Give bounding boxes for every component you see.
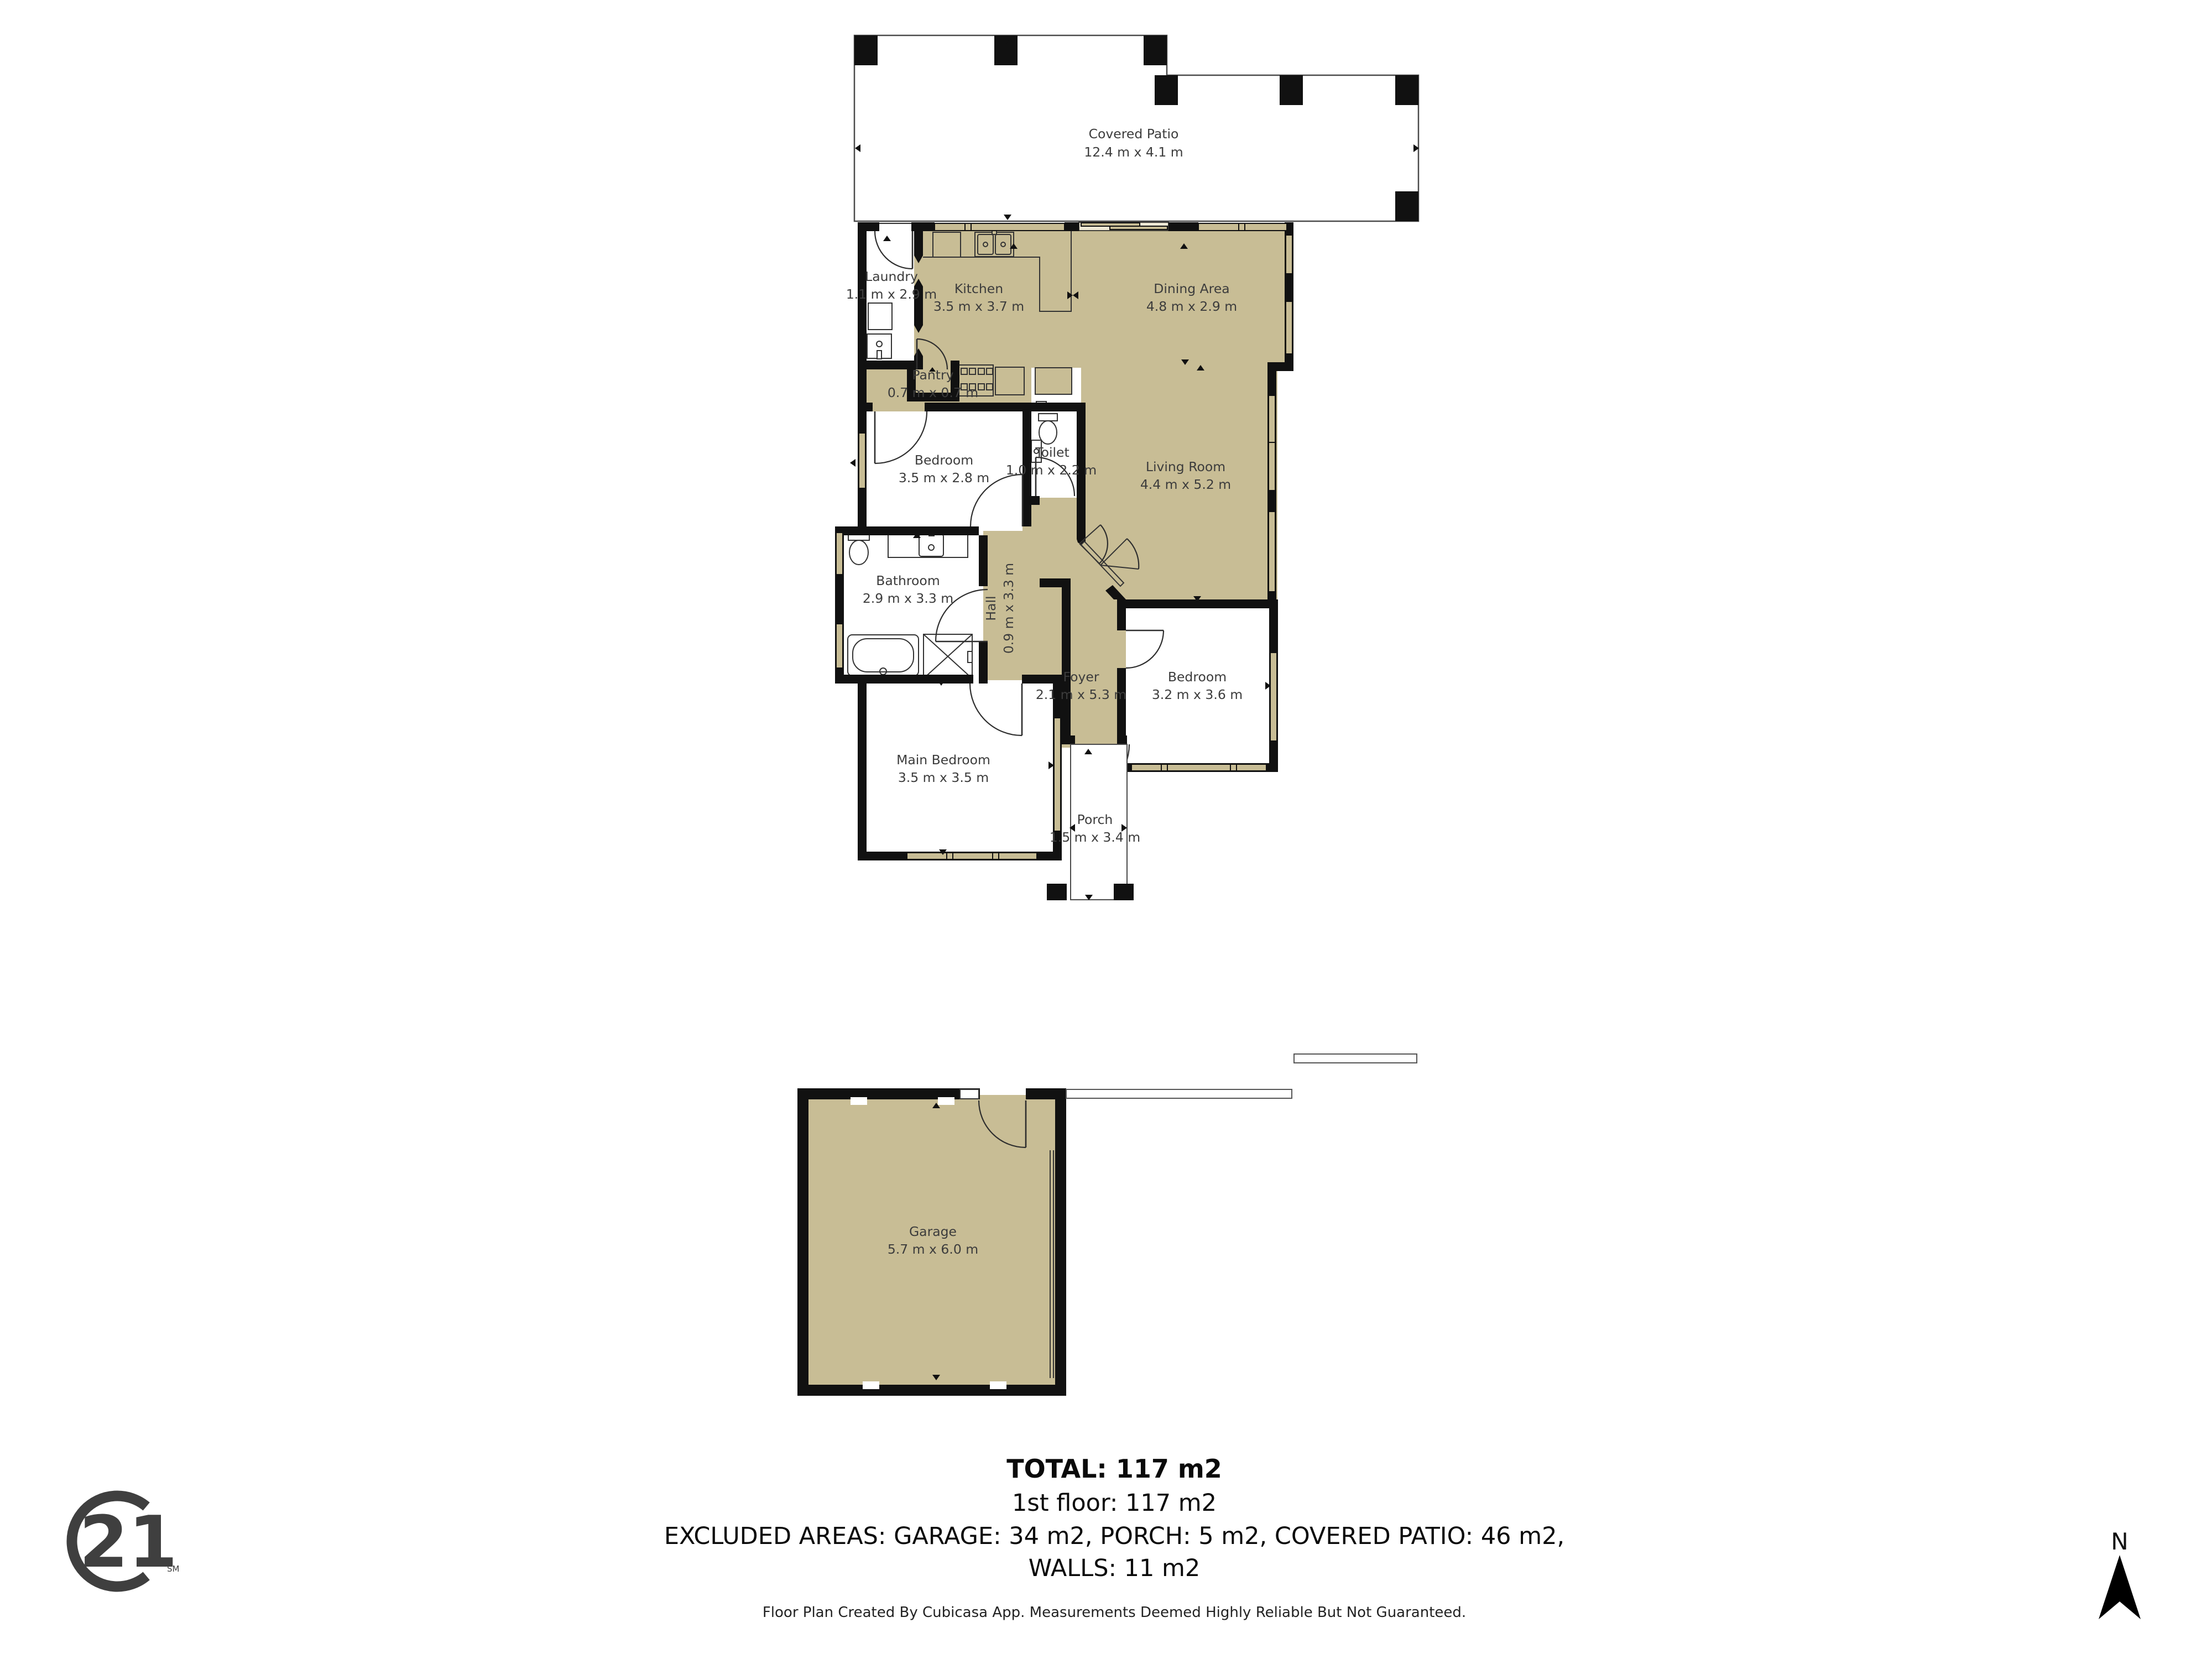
window-icon [1198,223,1287,231]
century21-number: 21 [79,1501,178,1584]
bedroom-1-area [867,411,1022,526]
window-icon [907,853,1037,859]
floor-plan-page: Covered Patio 12.4 m x 4.1 m Laundry 1.1… [0,0,2212,1659]
room-label-covered-patio: Covered Patio [1089,126,1179,142]
room-dims-living-room: 4.4 m x 5.2 m [1140,477,1231,492]
room-dims-pantry: 0.7 m x 0.7 m [888,385,978,400]
room-dims-porch: 1.5 m x 3.4 m [1050,830,1140,845]
century21-logo: 21 SM [72,1496,179,1587]
window-icon [1269,512,1275,592]
kitchen-sink-basin-icon [978,234,993,254]
century21-sm-mark: SM [167,1564,179,1574]
room-dims-covered-patio: 12.4 m x 4.1 m [1084,144,1183,160]
fence-line [1294,1054,1417,1063]
room-label-porch: Porch [1077,812,1113,827]
room-label-foyer: Foyer [1063,669,1099,685]
room-label-living-room: Living Room [1146,459,1225,474]
kitchen-sink-basin-icon [995,234,1011,254]
wall-notch-icon [990,1381,1006,1389]
bedroom-2-area [1126,608,1269,763]
shower-handle-icon [968,651,972,662]
room-label-toilet: Toilet [1035,445,1069,460]
room-dims-main-bedroom: 3.5 m x 3.5 m [898,770,989,785]
patio-post-icon [994,35,1018,65]
disclaimer-text: Floor Plan Created By Cubicasa App. Meas… [763,1604,1466,1621]
room-label-main-bedroom: Main Bedroom [896,752,990,768]
fence-line [1066,1089,1292,1098]
room-label-bedroom-2: Bedroom [1168,669,1227,685]
room-label-dining-area: Dining Area [1154,281,1229,296]
porch-post-icon [1047,884,1067,900]
patio-post-icon [1280,75,1303,105]
room-label-hall: Hall [983,596,999,620]
window-icon [1131,764,1266,771]
patio-post-icon [854,35,878,65]
room-label-bedroom-1: Bedroom [915,452,973,468]
room-dims-laundry: 1.1 m x 2.9 m [846,286,937,302]
floor-plan-canvas: Covered Patio 12.4 m x 4.1 m Laundry 1.1… [0,0,2212,1659]
room-dims-bedroom-2: 3.2 m x 3.6 m [1152,687,1243,702]
window-icon [935,223,1065,231]
patio-post-icon [1395,191,1418,221]
toilet-tank-icon [1039,414,1057,421]
patio-post-icon [1155,75,1178,105]
total-area-text: TOTAL: 117 m2 [1006,1454,1222,1484]
excluded-areas-text: EXCLUDED AREAS: GARAGE: 34 m2, PORCH: 5 … [664,1522,1564,1550]
main-bedroom-area [867,684,1053,852]
bathroom-toilet-bowl-icon [849,540,868,565]
wall-notch-icon [851,1097,867,1105]
room-dims-bedroom-1: 3.5 m x 2.8 m [899,470,989,486]
sliding-door-panel-icon [1110,226,1167,229]
garage-window-icon [960,1089,979,1099]
kitchen-dining-floor [918,227,1293,368]
room-label-pantry: Pantry [912,367,953,383]
window-icon [1270,653,1277,741]
summary-block: TOTAL: 117 m2 1st floor: 117 m2 EXCLUDED… [664,1454,1564,1621]
patio-post-icon [1144,35,1167,65]
wall-notch-icon [863,1381,879,1389]
north-label: N [2111,1528,2128,1555]
window-icon [836,533,843,575]
room-dims-hall: 0.9 m x 3.3 m [1001,563,1016,654]
room-dims-foyer: 2.1 m x 5.3 m [1036,687,1126,702]
counter-appliance-icon [1035,368,1072,394]
room-label-bathroom: Bathroom [876,573,940,588]
fences [1066,1054,1417,1098]
room-label-garage: Garage [909,1224,957,1239]
washer-icon [868,303,892,330]
kitchen-cabinet-icon [933,232,961,257]
patio-post-icon [1395,75,1418,105]
room-dims-dining-area: 4.8 m x 2.9 m [1146,299,1237,314]
room-dims-garage: 5.7 m x 6.0 m [888,1241,978,1257]
room-dims-kitchen: 3.5 m x 3.7 m [933,299,1024,314]
walls-area-text: WALLS: 11 m2 [1029,1554,1201,1582]
room-dims-bathroom: 2.9 m x 3.3 m [863,591,953,606]
window-icon [1054,718,1061,831]
room-label-laundry: Laundry [865,269,918,284]
wall-notch-icon [938,1097,954,1105]
porch-post-icon [1114,884,1134,900]
window-icon [1286,301,1292,354]
compass: N [2099,1528,2141,1619]
window-icon [836,624,843,668]
window-icon [1286,235,1292,274]
dishwasher-icon [995,367,1024,395]
window-icon [859,433,865,488]
laundry-faucet-icon [877,351,881,359]
room-dims-toilet: 1.0 m x 2.2 m [1006,462,1097,478]
floor-area-text: 1st floor: 117 m2 [1012,1489,1217,1517]
room-label-kitchen: Kitchen [954,281,1003,296]
north-arrow-icon [2099,1555,2141,1619]
